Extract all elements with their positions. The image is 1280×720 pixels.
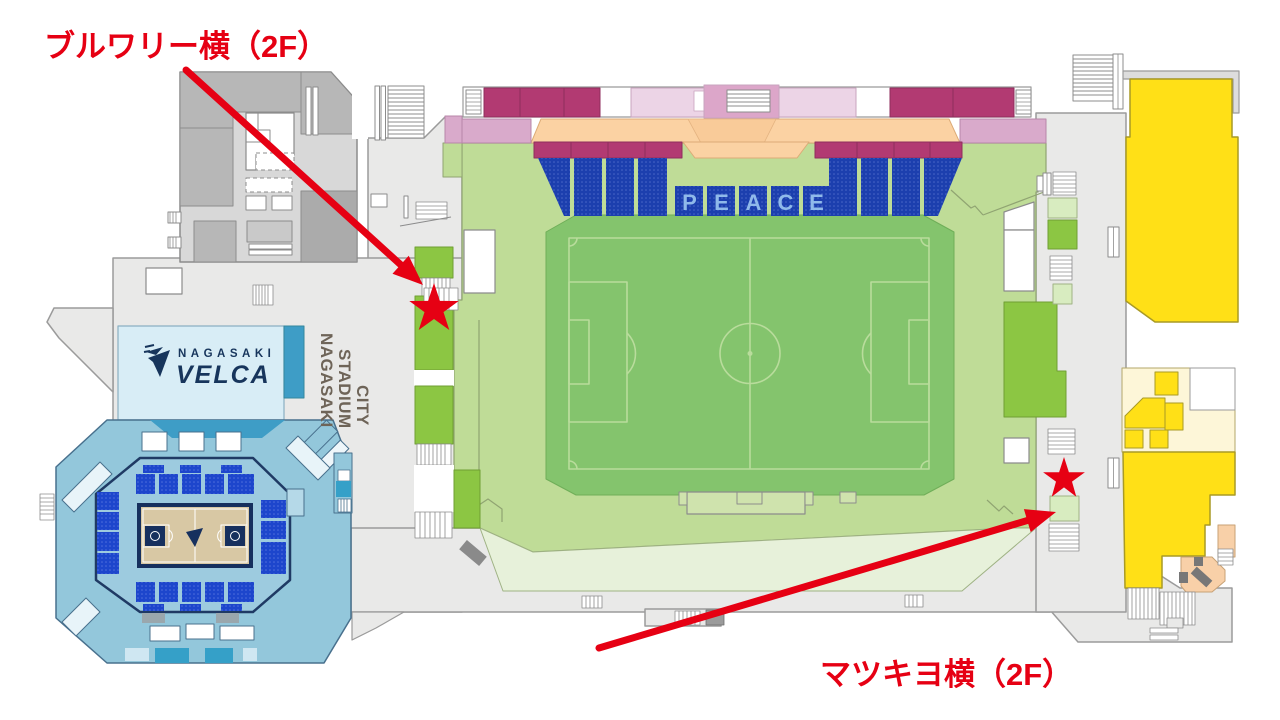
svg-text:マツキヨ横（2F）: マツキヨ横（2F） [820, 657, 1073, 692]
svg-text:NAGASAKI: NAGASAKI [317, 333, 336, 428]
svg-text:STADIUM: STADIUM [335, 349, 354, 429]
svg-text:A: A [746, 190, 762, 215]
svg-text:ブルワリー横（2F）: ブルワリー横（2F） [44, 29, 328, 64]
svg-text:E: E [714, 190, 729, 215]
svg-text:VELCA: VELCA [176, 361, 271, 389]
svg-text:C: C [778, 190, 794, 215]
svg-text:CITY: CITY [353, 385, 372, 426]
svg-text:NAGASAKI: NAGASAKI [178, 348, 275, 360]
svg-text:P: P [682, 190, 697, 215]
svg-text:E: E [809, 190, 824, 215]
